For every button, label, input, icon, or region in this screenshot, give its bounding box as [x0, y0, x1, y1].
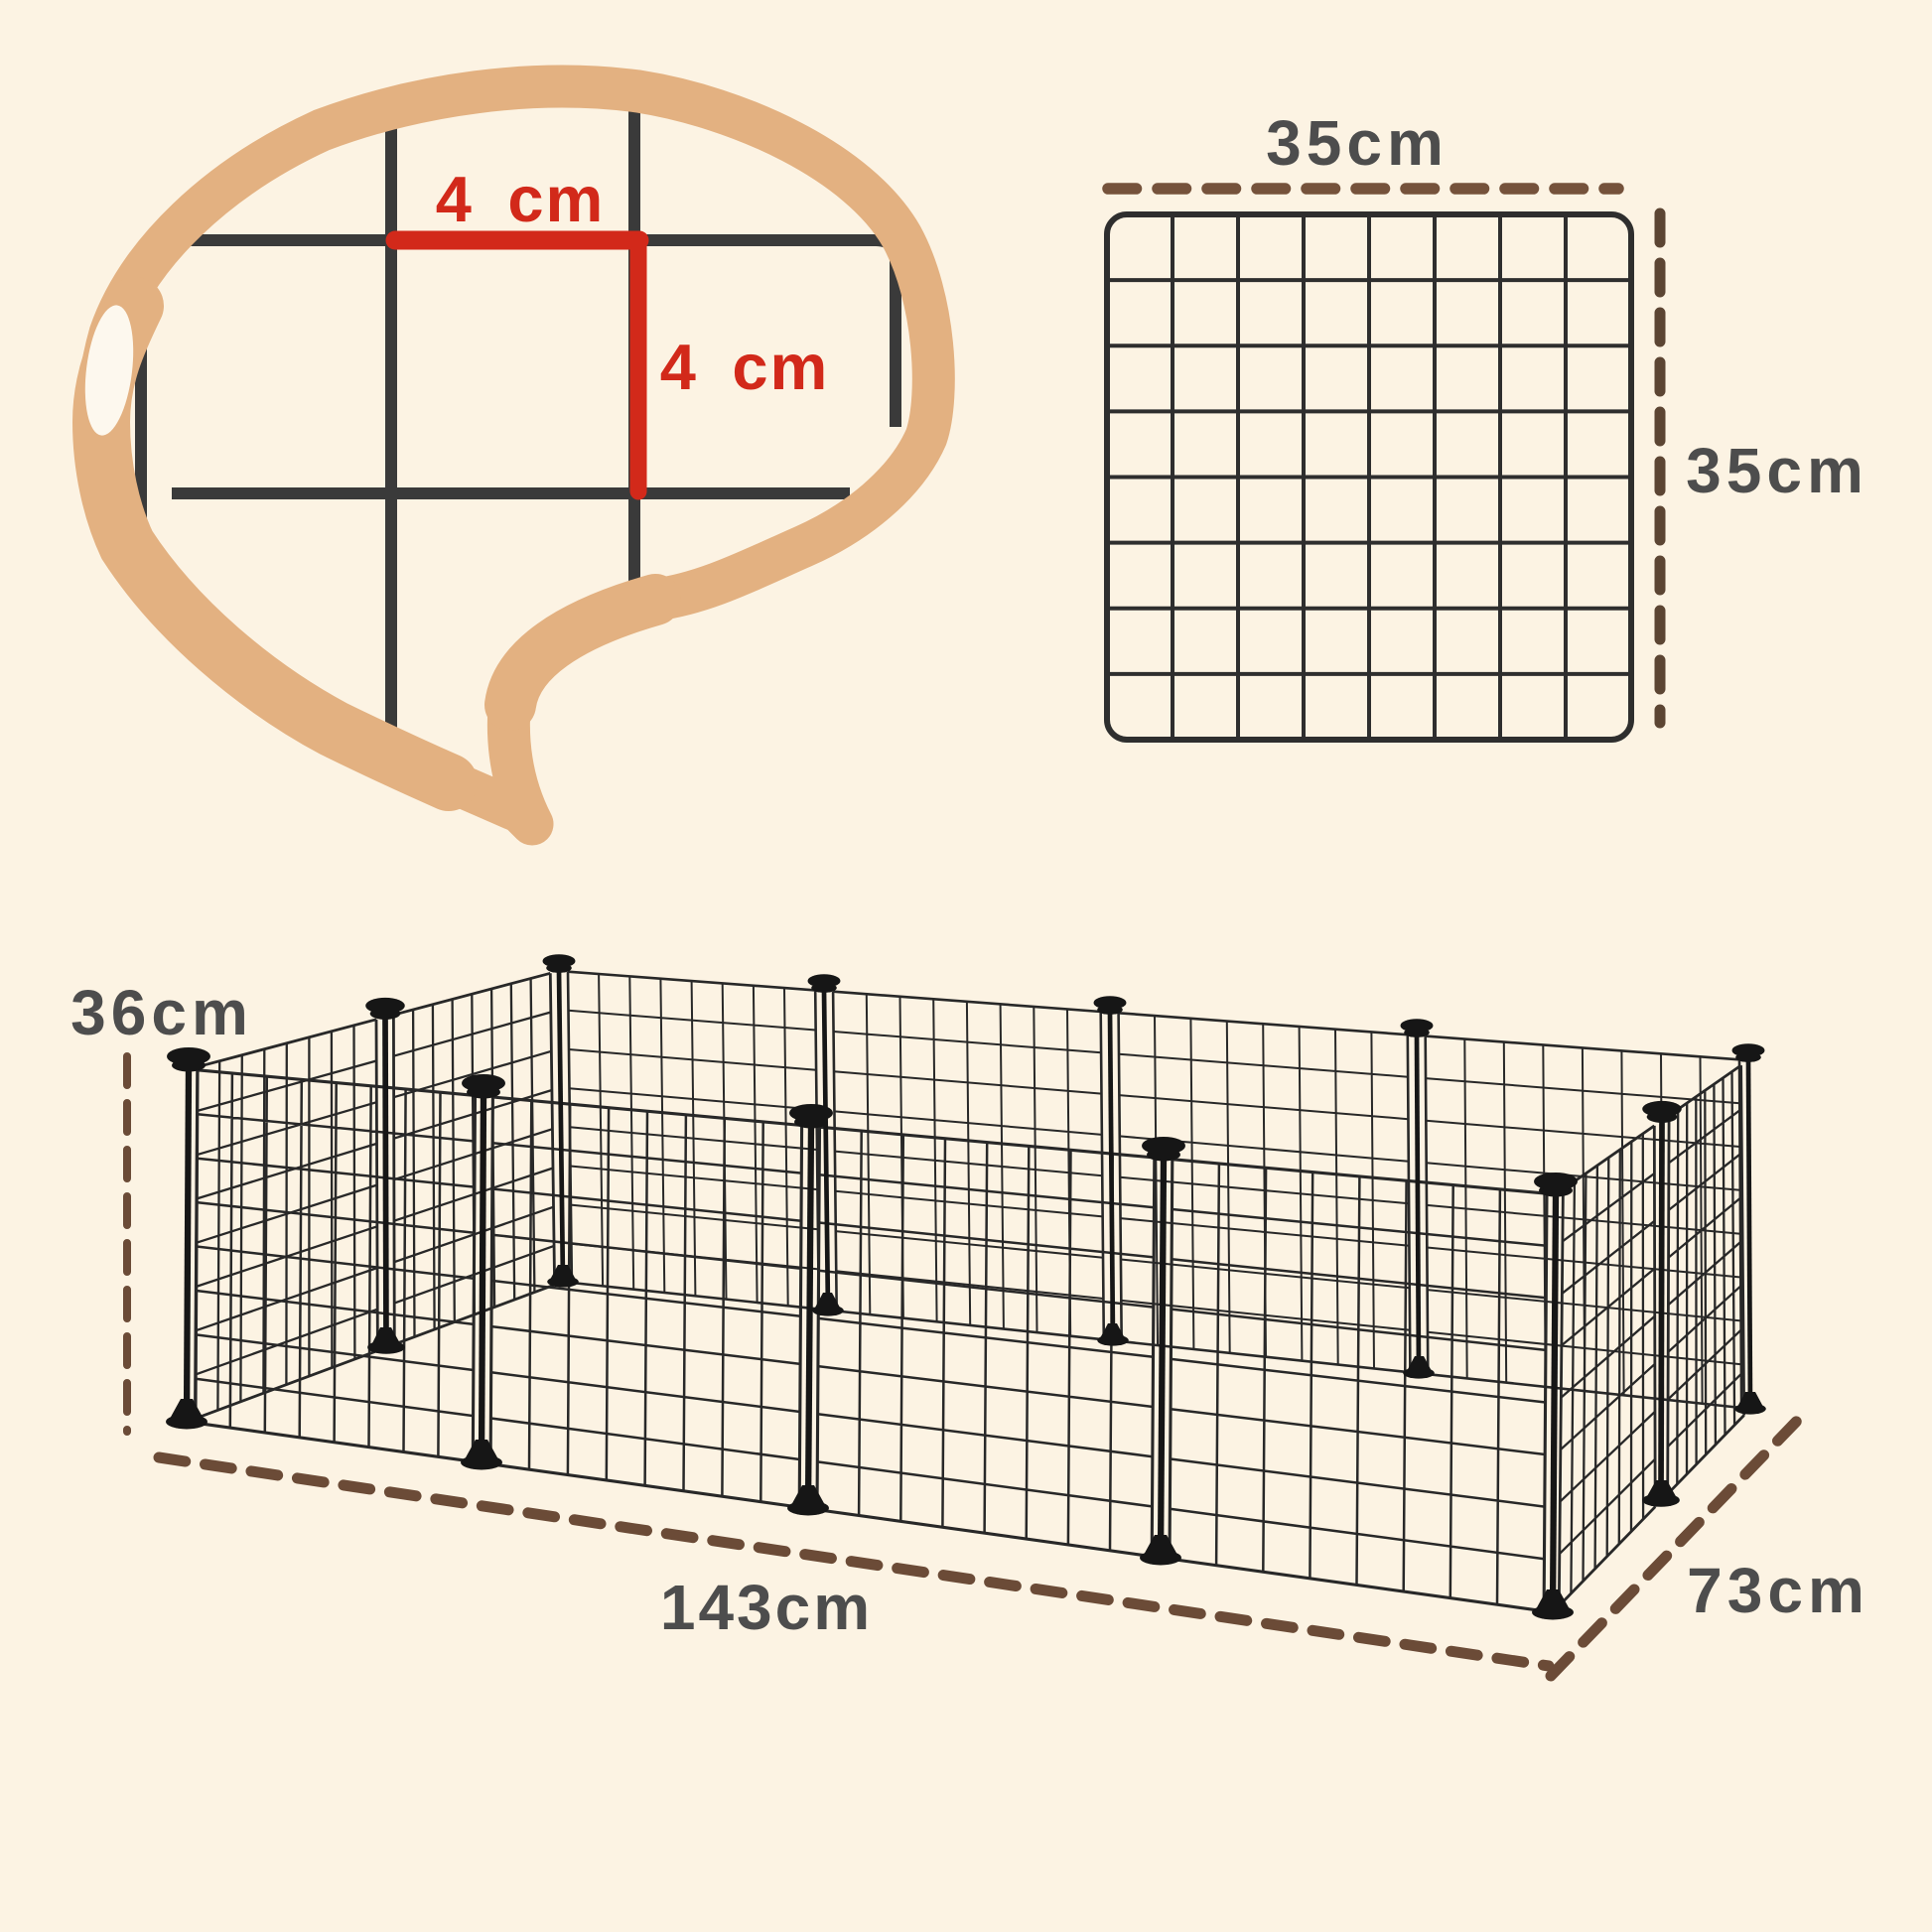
- svg-text:35cm: 35cm: [1686, 435, 1868, 506]
- svg-text:73cm: 73cm: [1687, 1555, 1869, 1626]
- svg-text:4 cm: 4 cm: [660, 331, 830, 403]
- svg-text:4 cm: 4 cm: [436, 163, 606, 235]
- svg-text:36cm: 36cm: [70, 977, 253, 1048]
- svg-text:35cm: 35cm: [1266, 107, 1449, 179]
- svg-text:143cm: 143cm: [660, 1572, 873, 1643]
